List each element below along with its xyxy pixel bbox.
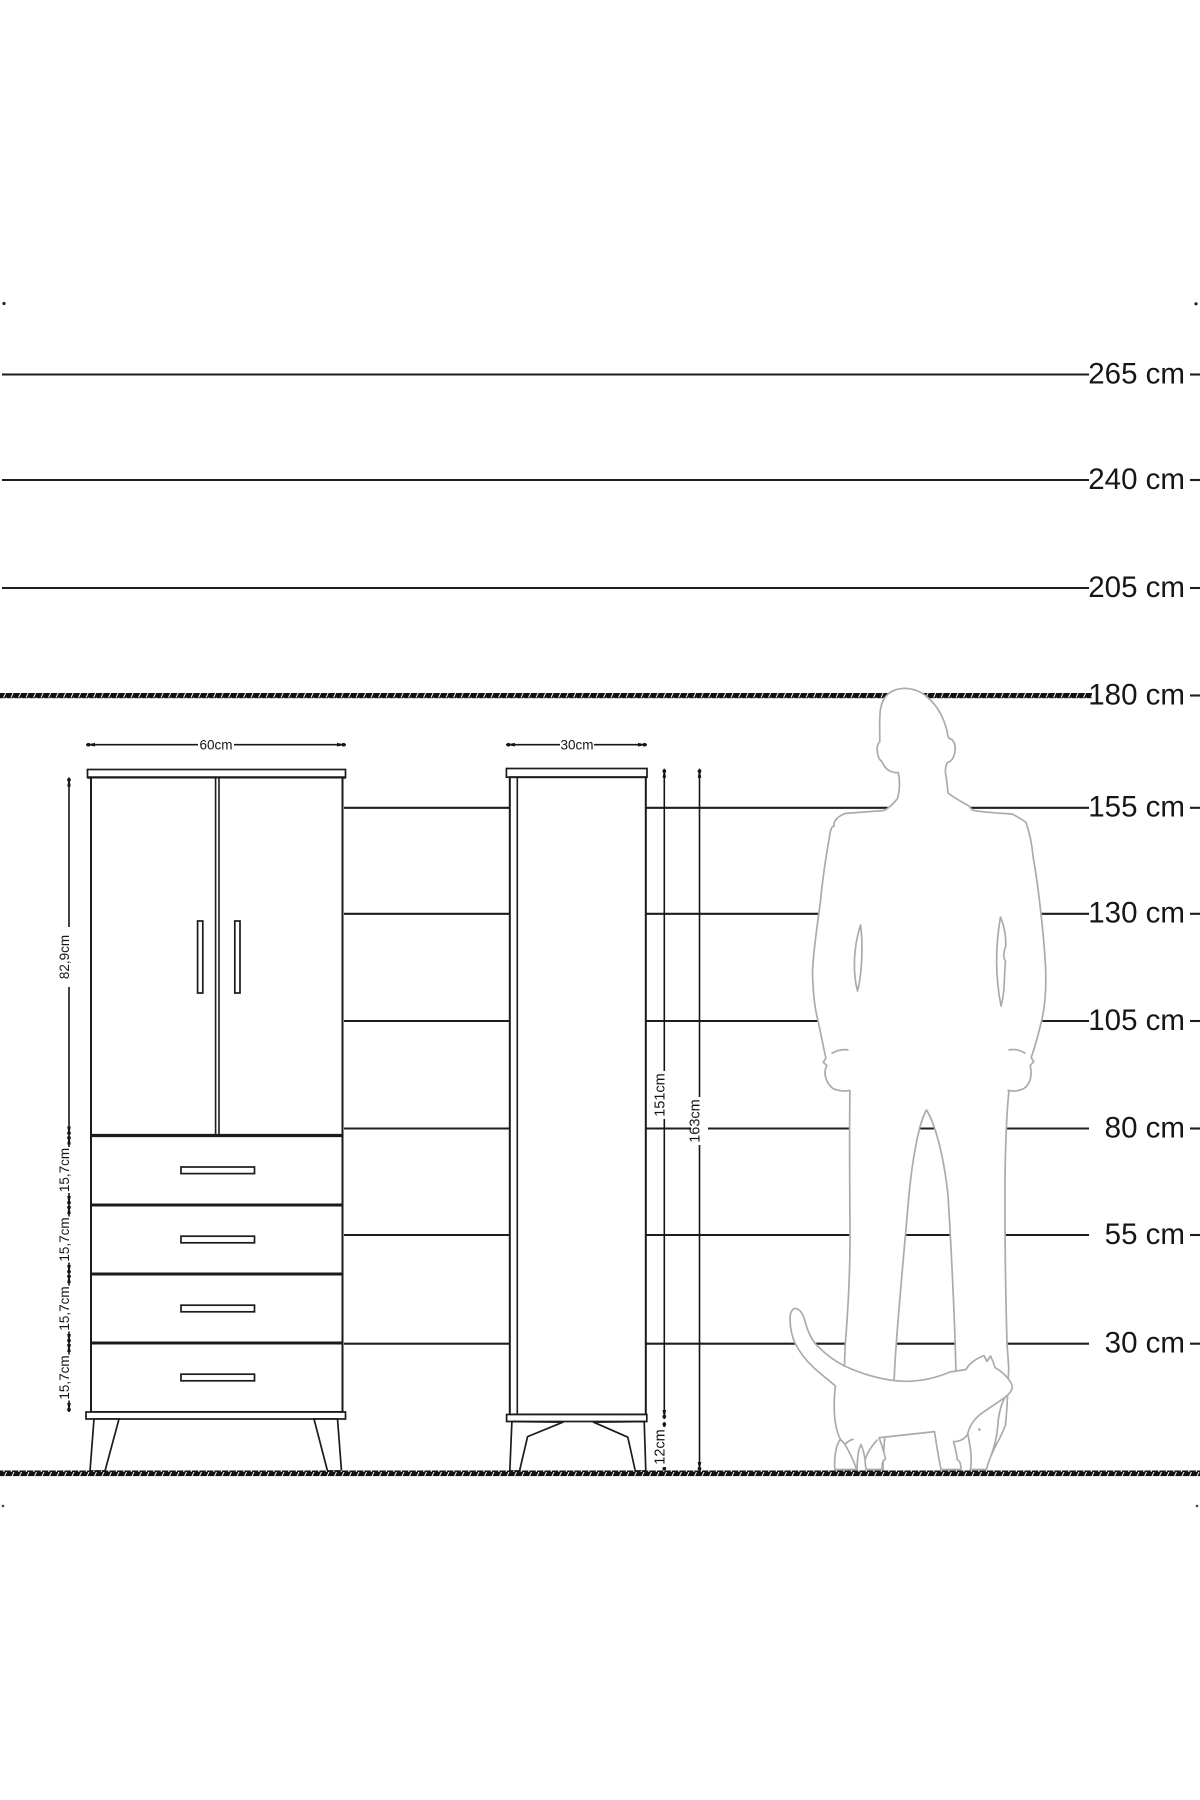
svg-text:180 cm: 180 cm — [1088, 678, 1185, 711]
svg-text:15,7cm: 15,7cm — [57, 1217, 72, 1261]
svg-text:105 cm: 105 cm — [1088, 1004, 1185, 1037]
svg-text:55 cm: 55 cm — [1105, 1218, 1185, 1251]
svg-text:265 cm: 265 cm — [1088, 357, 1185, 390]
svg-text:130 cm: 130 cm — [1088, 897, 1185, 930]
svg-text:30cm: 30cm — [560, 738, 593, 753]
svg-text:15,7cm: 15,7cm — [57, 1355, 72, 1399]
svg-text:12cm: 12cm — [652, 1429, 668, 1464]
svg-text:82,9cm: 82,9cm — [57, 935, 72, 979]
svg-text:30 cm: 30 cm — [1105, 1327, 1185, 1360]
svg-text:151cm: 151cm — [652, 1073, 668, 1117]
svg-text:80 cm: 80 cm — [1105, 1111, 1185, 1144]
svg-text:60cm: 60cm — [199, 738, 232, 753]
svg-text:155 cm: 155 cm — [1088, 791, 1185, 824]
svg-text:205 cm: 205 cm — [1088, 571, 1185, 604]
svg-text:15,7cm: 15,7cm — [57, 1286, 72, 1330]
svg-text:163cm: 163cm — [688, 1099, 704, 1143]
svg-text:15,7cm: 15,7cm — [57, 1148, 72, 1192]
svg-text:240 cm: 240 cm — [1088, 463, 1185, 496]
